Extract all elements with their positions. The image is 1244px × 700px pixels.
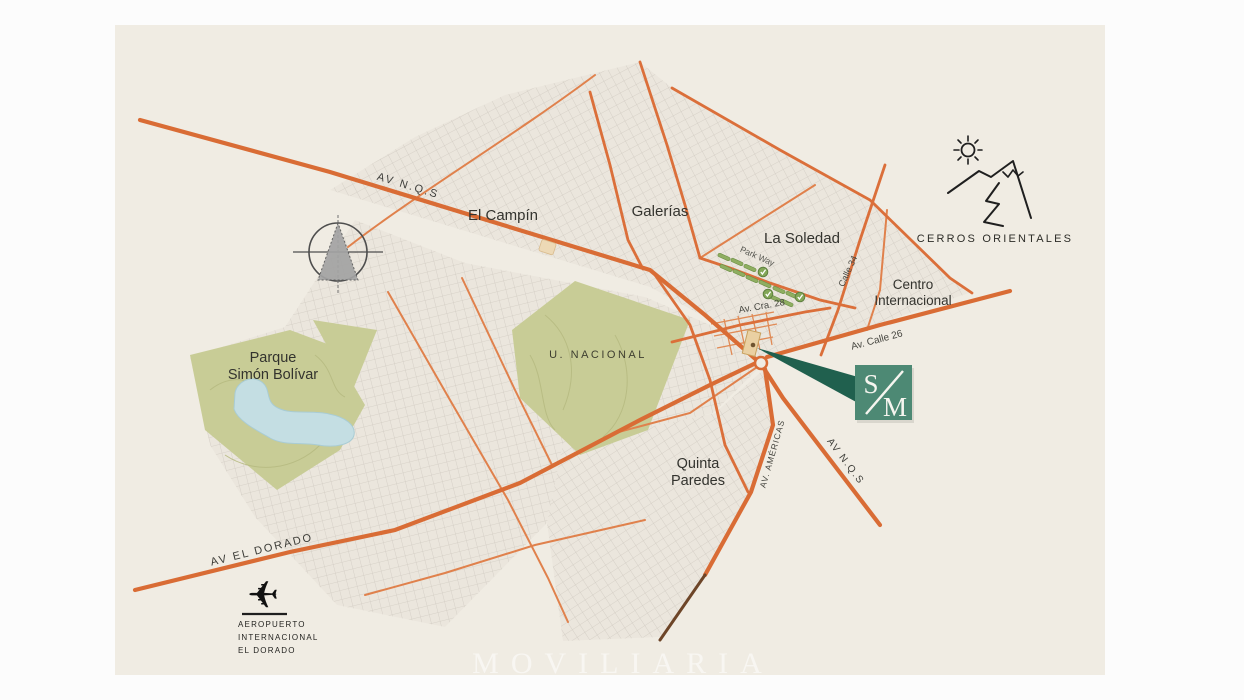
marker-pointer: [757, 348, 858, 403]
sm-letter-s: S: [863, 369, 878, 399]
property-dot: [751, 343, 756, 348]
map-canvas: S M ✈: [115, 25, 1105, 675]
landmark-label-aeropuerto: AEROPUERTO INTERNACIONAL EL DORADO: [238, 619, 368, 657]
neighborhood-label-quinta-paredes: Quinta Paredes: [643, 456, 753, 489]
neighborhood-label-el-campin: El Campín: [443, 207, 563, 224]
sm-letter-m: M: [883, 392, 907, 422]
neighborhood-label-galerias: Galerías: [600, 203, 720, 220]
neighborhood-label-la-soledad: La Soledad: [737, 230, 867, 247]
brand-watermark: MOVILIARIA: [423, 647, 823, 681]
park-label-parque-simon-bolivar: Parque Simón Bolívar: [203, 350, 343, 383]
park-label-u-nacional: U. NACIONAL: [528, 349, 668, 362]
mountains-sun-icon: [948, 136, 1031, 226]
landmark-label-cerros-orientales: CERROS ORIENTALES: [905, 233, 1085, 246]
map-page: S M ✈: [0, 0, 1244, 700]
airplane-icon: ✈: [242, 573, 287, 617]
junction-roundabout: [755, 357, 767, 369]
neighborhood-label-centro-internacional: Centro Internacional: [843, 277, 983, 308]
svg-text:✈: ✈: [247, 573, 279, 617]
